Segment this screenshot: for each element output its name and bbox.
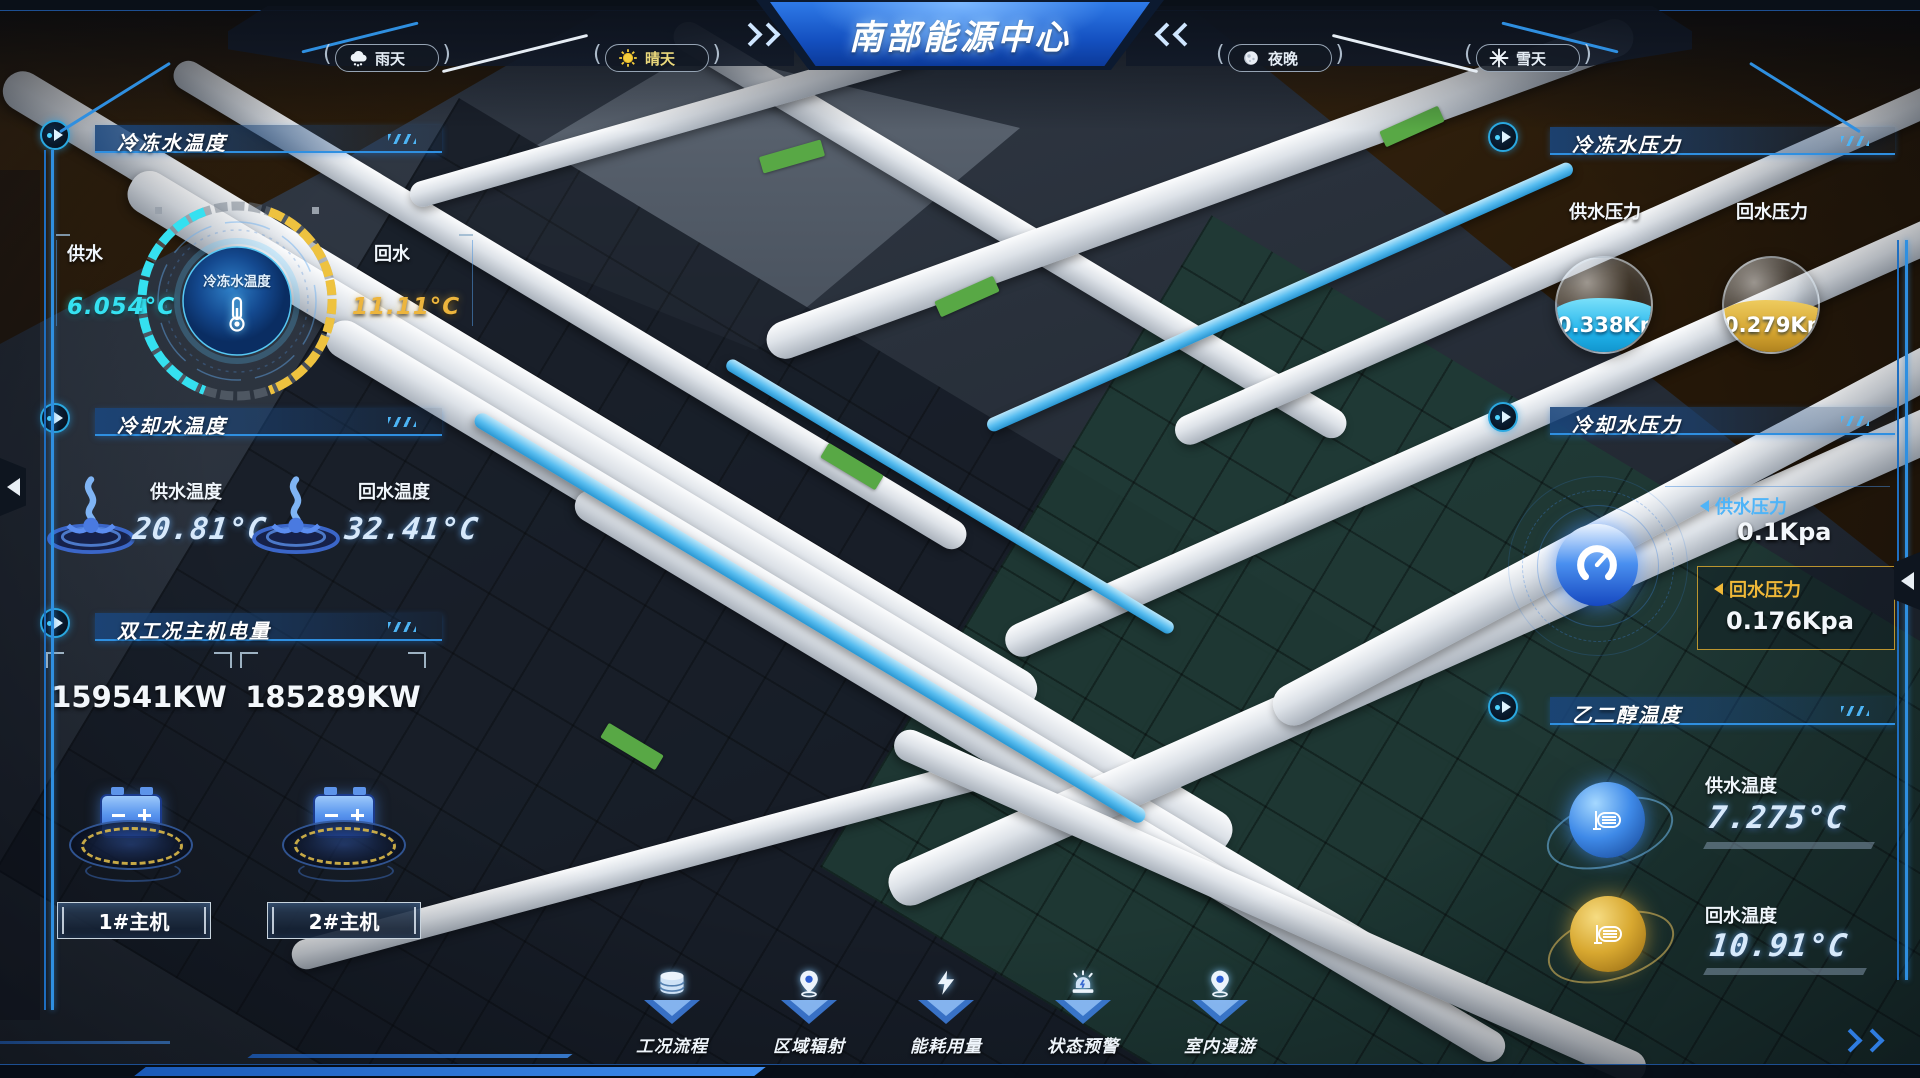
panel-dual-host-power-header: 双工况主机电量 — [40, 608, 442, 642]
right-edge-line — [1905, 240, 1908, 980]
glycol-supply-value: 7.275°C — [1706, 800, 1848, 836]
cooling-pressure-return-label-row: 回水压力 — [1714, 576, 1894, 602]
panel-arrow-icon[interactable] — [1488, 692, 1518, 722]
map-pin-icon — [795, 966, 823, 998]
return-value: 11.11°C — [352, 294, 462, 320]
cooling-supply-label: 供水温度 — [150, 478, 222, 504]
right-edge-line — [1897, 240, 1899, 980]
panel-title-bar: 冷却水温度 — [95, 408, 442, 436]
return-label: 回水压力 — [1729, 576, 1801, 602]
panel-glycol-temp-header: 乙二醇温度 — [1488, 692, 1895, 726]
cooling-pressure-return-value: 0.176Kpa — [1726, 607, 1894, 635]
supply-pressure-value: 0.338Kpa — [1557, 313, 1651, 337]
sun-icon — [618, 48, 638, 68]
host1-power-block: 159541KW — [46, 652, 232, 714]
panel-title: 双工况主机电量 — [117, 615, 271, 644]
panel-chilled-water-pressure-header: 冷冻水压力 — [1488, 122, 1895, 156]
host2-button-label: 2#主机 — [309, 906, 380, 935]
chilled-return-block: 回水 11.11°C — [352, 240, 473, 326]
nav-label: 区域辐射 — [773, 1032, 845, 1057]
pressure-gauge — [1556, 524, 1638, 606]
panel-title: 冷冻水压力 — [1572, 129, 1682, 158]
speedometer-icon — [1573, 541, 1621, 589]
moon-icon — [1241, 48, 1261, 68]
cooling-supply-value: 20.81°C — [131, 512, 269, 547]
cooling-pressure-divider — [1665, 486, 1890, 487]
nav-pedestal — [918, 1000, 974, 1026]
host2-power-value: 185289KW — [245, 680, 421, 714]
weather-label: 雨天 — [375, 48, 405, 69]
cooling-pressure-return-box: 回水压力 0.176Kpa — [1697, 566, 1895, 650]
panel-title: 冷冻水温度 — [117, 127, 227, 156]
weather-button-rain[interactable]: 雨天 — [335, 44, 439, 72]
weather-label: 夜晚 — [1268, 48, 1298, 69]
gauge-label: 冷冻水温度 — [203, 270, 271, 290]
nav-item-indoor-roam[interactable]: 室内漫游 — [1155, 966, 1285, 1062]
nav-item-energy-usage[interactable]: 能耗用量 — [881, 966, 1011, 1062]
panel-title-bar: 冷冻水温度 — [95, 125, 442, 153]
host1-power-value: 159541KW — [51, 680, 227, 714]
cooling-supply-icon — [45, 470, 137, 558]
supply-label: 供水 — [67, 240, 177, 266]
arrow-left-icon — [1700, 500, 1709, 512]
host2-battery — [282, 788, 406, 892]
glycol-supply-sphere — [1569, 782, 1645, 858]
nav-label: 室内漫游 — [1184, 1032, 1256, 1057]
alarm-icon — [1068, 966, 1098, 998]
panel-title: 冷却水温度 — [117, 410, 227, 439]
weather-button-sunny[interactable]: 晴天 — [605, 44, 709, 72]
cooling-pressure-supply-label-row: 供水压力 — [1700, 493, 1787, 519]
header-slashes-decoration — [388, 134, 416, 144]
panel-title: 乙二醇温度 — [1572, 699, 1682, 728]
supply-pressure-sphere: 0.338Kpa — [1555, 256, 1653, 354]
glycol-return-label: 回水温度 — [1705, 902, 1777, 928]
value-underline-decoration — [1703, 968, 1867, 975]
panel-title-bar: 双工况主机电量 — [95, 613, 442, 641]
host1-battery — [69, 788, 193, 892]
left-edge-line — [51, 150, 54, 1010]
panel-arrow-icon[interactable] — [1488, 122, 1518, 152]
weather-button-snow[interactable]: 雪天 — [1476, 44, 1580, 72]
nav-label: 工况流程 — [636, 1032, 708, 1057]
snowflake-icon — [1489, 48, 1509, 68]
glycol-return-value: 10.91°C — [1708, 928, 1850, 964]
chilled-pressure-supply-label: 供水压力 — [1545, 198, 1665, 224]
heat-exchanger-icon — [1588, 805, 1626, 835]
panel-arrow-icon[interactable] — [1488, 402, 1518, 432]
arrow-left-icon — [1901, 572, 1914, 590]
nav-pedestal — [781, 1000, 837, 1026]
rain-cloud-icon — [348, 48, 368, 68]
heat-exchanger-icon — [1589, 919, 1627, 949]
header-slashes-decoration — [1841, 136, 1869, 146]
weather-label: 雪天 — [1516, 48, 1546, 69]
lightning-icon — [933, 966, 959, 998]
panel-title-bar: 冷冻水压力 — [1550, 127, 1895, 155]
header-wing-right — [1126, 6, 1692, 66]
cooling-return-value: 32.41°C — [343, 512, 481, 547]
host1-button[interactable]: 1#主机 — [57, 902, 211, 939]
cooling-return-icon — [250, 470, 342, 558]
nav-pedestal — [1055, 1000, 1111, 1026]
header-slashes-decoration — [388, 622, 416, 632]
page-title: 南部能源中心 — [849, 10, 1071, 59]
title-plate: 南部能源中心 — [770, 2, 1150, 66]
panel-chilled-water-temp-header: 冷冻水温度 — [40, 120, 442, 154]
nav-label: 能耗用量 — [910, 1032, 982, 1057]
bottom-strip-decoration — [134, 1067, 766, 1076]
return-pressure-value: 0.279Kpa — [1724, 313, 1818, 337]
panel-title-bar: 乙二醇温度 — [1550, 697, 1895, 725]
panel-title: 冷却水压力 — [1572, 409, 1682, 438]
energy-center-dashboard: 南部能源中心 雨天 晴天 夜晚 雪天 冷冻水温度 — [0, 0, 1920, 1078]
host1-button-label: 1#主机 — [99, 906, 170, 935]
nav-item-area-radiation[interactable]: 区域辐射 — [744, 966, 874, 1062]
header-slashes-decoration — [1841, 706, 1869, 716]
bottom-strip-decoration — [0, 1041, 170, 1044]
panel-cooling-water-temp-header: 冷却水温度 — [40, 403, 442, 437]
database-icon — [657, 966, 687, 998]
nav-item-process-flow[interactable]: 工况流程 — [607, 966, 737, 1062]
battery-platform — [69, 820, 193, 870]
arrow-left-icon — [7, 478, 20, 496]
host2-button[interactable]: 2#主机 — [267, 902, 421, 939]
cooling-pressure-supply-value: 0.1Kpa — [1737, 518, 1832, 546]
header-wing-left — [228, 6, 794, 66]
return-pressure-sphere: 0.279Kpa — [1722, 256, 1820, 354]
supply-value: 6.054°C — [67, 294, 177, 320]
panel-cooling-water-pressure-header: 冷却水压力 — [1488, 402, 1895, 436]
chilled-supply-block: 供水 6.054°C — [56, 240, 177, 326]
arrow-left-icon — [1714, 583, 1723, 595]
supply-label: 供水压力 — [1715, 493, 1787, 519]
battery-platform — [282, 820, 406, 870]
chilled-pressure-return-label: 回水压力 — [1712, 198, 1832, 224]
thermometer-icon — [225, 296, 249, 332]
panel-arrow-icon[interactable] — [40, 120, 70, 150]
host2-power-block: 185289KW — [240, 652, 426, 714]
glycol-supply-label: 供水温度 — [1705, 772, 1777, 798]
water-fountain-icon — [45, 470, 137, 554]
nav-item-status-alarm[interactable]: 状态预警 — [1018, 966, 1148, 1062]
water-fountain-icon — [250, 470, 342, 554]
weather-button-night[interactable]: 夜晚 — [1228, 44, 1332, 72]
nav-pedestal — [644, 1000, 700, 1026]
bottom-strip-decoration — [247, 1054, 572, 1058]
header-slashes-decoration — [1841, 416, 1869, 426]
cooling-return-label: 回水温度 — [358, 478, 430, 504]
nav-label: 状态预警 — [1047, 1032, 1119, 1057]
return-label: 回水 — [352, 240, 462, 266]
weather-label: 晴天 — [645, 48, 675, 69]
left-edge-line — [44, 150, 46, 1010]
walk-location-icon — [1206, 966, 1234, 998]
header-slashes-decoration — [388, 417, 416, 427]
panel-title-bar: 冷却水压力 — [1550, 407, 1895, 435]
value-underline-decoration — [1703, 842, 1875, 849]
glycol-return-sphere — [1570, 896, 1646, 972]
left-edge-shade — [0, 170, 40, 1020]
nav-pedestal — [1192, 1000, 1248, 1026]
